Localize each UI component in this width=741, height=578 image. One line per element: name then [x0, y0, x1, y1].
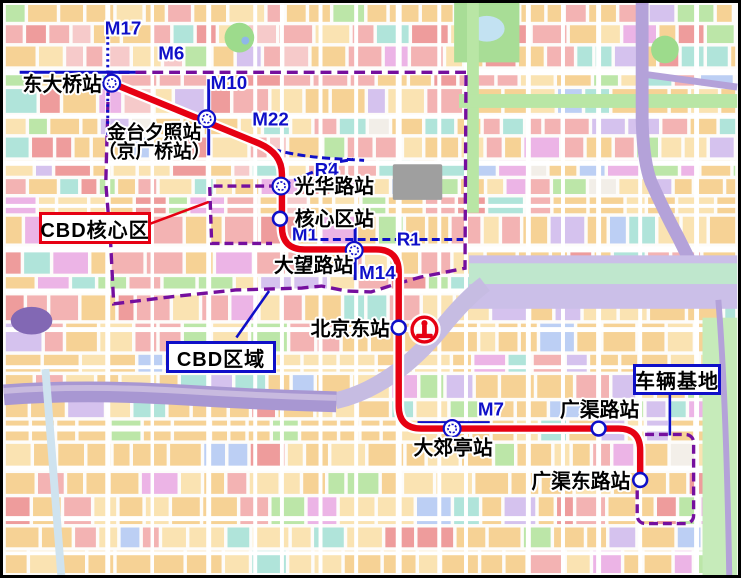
- depot-label: 车辆基地: [635, 365, 719, 394]
- line-label-M7: M7: [478, 399, 504, 420]
- river-green-band: [469, 263, 737, 284]
- station-marker-大郊亭站: [444, 420, 461, 437]
- line-label-M10: M10: [211, 72, 248, 93]
- cbd-core-label: CBD核心区: [40, 214, 149, 243]
- station-label-alt: （京广桥站）: [98, 139, 211, 161]
- park-round-2: [651, 36, 679, 64]
- line-label-R1: R1: [397, 228, 421, 249]
- line-label-M14: M14: [359, 262, 396, 283]
- line-label-M22: M22: [252, 109, 289, 130]
- station-marker-北京东站: [392, 321, 406, 335]
- depot-label-box: 车辆基地: [633, 364, 721, 395]
- station-label: 广渠东路站: [531, 470, 630, 493]
- map-canvas: M17M6M10M22R4M1R1M14M7东大桥站金台夕照站（京广桥站）光华路…: [0, 0, 741, 578]
- station-label: 东大桥站: [23, 73, 102, 96]
- cbd-region-label-box: CBD区域: [166, 341, 276, 373]
- metro-map: M17M6M10M22R4M1R1M14M7东大桥站金台夕照站（京广桥站）光华路…: [3, 3, 738, 575]
- park-round: [225, 23, 255, 53]
- station-marker-广渠路站: [592, 422, 606, 436]
- station-label: 大望路站: [274, 254, 353, 277]
- green-strip-horizontal: [459, 94, 737, 108]
- station-marker-东大桥站: [103, 75, 120, 92]
- station-label: 大郊亭站: [414, 436, 493, 459]
- line-label-M6: M6: [158, 42, 184, 63]
- icons: [408, 313, 441, 346]
- railway-station-icon: [408, 313, 441, 346]
- station-label: 广渠路站: [560, 399, 639, 422]
- lake-dark: [11, 307, 53, 335]
- station-label: 北京东站: [311, 318, 390, 341]
- station-label: 金台夕照站: [106, 121, 201, 143]
- large-building-block: [393, 164, 442, 200]
- station-label: 光华路站: [294, 175, 374, 198]
- cbd-core-label-box: CBD核心区: [39, 212, 151, 244]
- station-marker-核心区站: [273, 212, 287, 226]
- station-marker-光华路站: [273, 178, 290, 195]
- station-label: 核心区站: [295, 208, 374, 231]
- cbd-region-label: CBD区域: [177, 343, 265, 372]
- park-pond-dot: [241, 37, 249, 45]
- line-label-M17: M17: [105, 18, 142, 39]
- station-marker-广渠东路站: [633, 473, 647, 487]
